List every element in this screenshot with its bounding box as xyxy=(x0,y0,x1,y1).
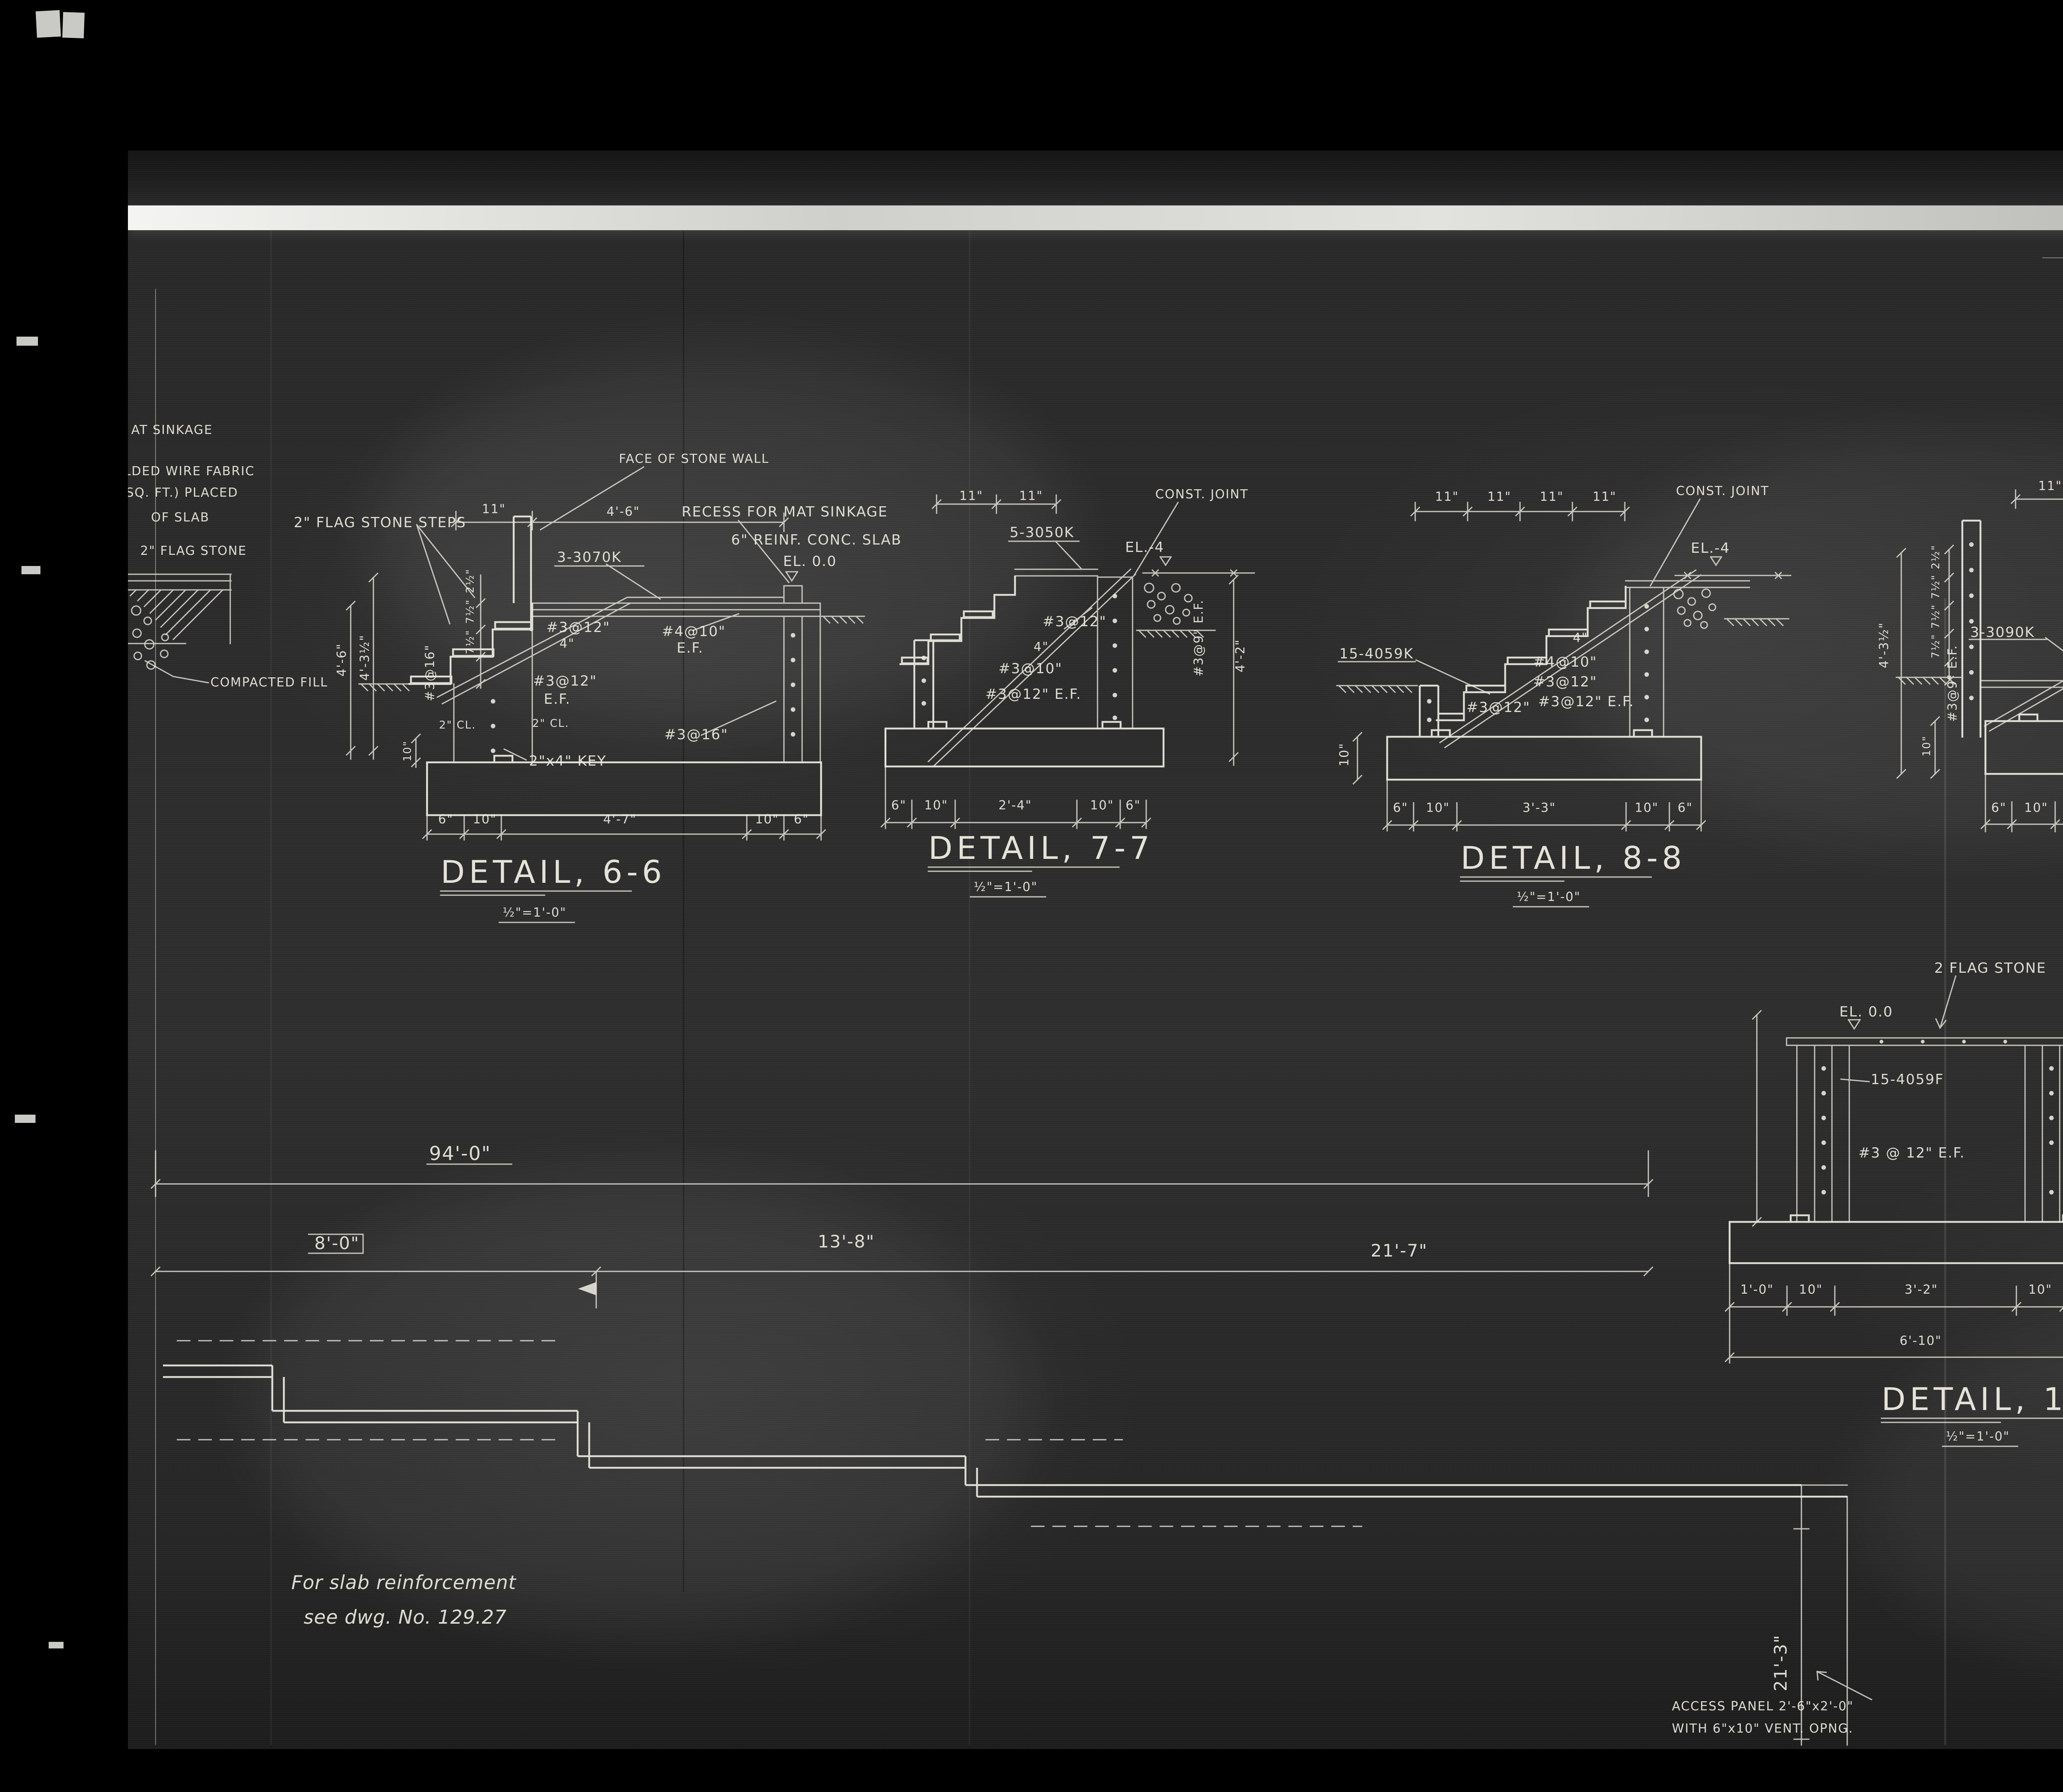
margin-note: SQ. FT.) PLACED xyxy=(128,486,238,500)
d66-dim: 7½" xyxy=(464,599,477,624)
d66-callout: E.F. xyxy=(677,640,703,656)
film-mark xyxy=(17,337,38,346)
d1010-title-underline xyxy=(1881,1418,2063,1422)
d99-dim: 11" xyxy=(2038,479,2062,493)
d66-dim: 10" xyxy=(755,812,779,827)
d99-callout: 3-3090K xyxy=(1970,624,2035,641)
d66-callout: #3@16" xyxy=(423,644,437,701)
drawing-linework: AT SINKAGE LDED WIRE FABRIC SQ. FT.) PLA… xyxy=(128,151,2063,1749)
margin-gravel xyxy=(132,606,168,669)
detail-7-7: 5-3050K EL.-4 CONST. JOINT #3@12" 4" #3@… xyxy=(881,487,1254,897)
d66-dim: 2½" xyxy=(464,568,477,593)
film-mark xyxy=(15,1115,35,1123)
d77-callout: #3@12" xyxy=(1043,613,1107,630)
d1010-dim: 10" xyxy=(1799,1283,1823,1297)
detail-9-9: 3-3090K 2" FLAG STONE RECESS FOR MAT SIN… xyxy=(1877,442,2063,912)
d66-callout: #3@12" xyxy=(546,619,610,636)
d99-structure xyxy=(1962,521,2063,778)
margin-note: AT SINKAGE xyxy=(131,423,213,437)
d1010-dim: 3'-2" xyxy=(1905,1283,1938,1297)
d77-dim: 6" xyxy=(1126,798,1141,813)
slab-note: For slab reinforcement xyxy=(291,1571,517,1594)
d88-dim: 6" xyxy=(1678,801,1693,815)
d77-callout: 4" xyxy=(1034,640,1049,654)
d66-dim: 4'-6" xyxy=(607,505,640,519)
d1010-lines xyxy=(1725,976,2063,1363)
d88-gravel xyxy=(1674,589,1716,628)
d77-callout: #3@9" E.F. xyxy=(1192,599,1206,677)
d88-dim: 10" xyxy=(1337,743,1352,766)
d99-dim: 6" xyxy=(1991,801,2006,815)
d66-title: DETAIL, 6-6 xyxy=(441,854,666,890)
film-mark xyxy=(62,12,85,38)
d66-callout: 2" CL. xyxy=(532,717,569,730)
d77-gravel xyxy=(1145,583,1192,624)
d77-title: DETAIL, 7-7 xyxy=(928,830,1154,866)
border-line xyxy=(156,231,2063,1745)
d66-callout: 2" CL. xyxy=(439,719,476,731)
d88-callout: 15-4059K xyxy=(1339,646,1414,662)
film-mark xyxy=(49,1642,64,1648)
d66-title-underline xyxy=(441,891,631,895)
plan-dim: 21'-3" xyxy=(1770,1634,1791,1691)
d77-dim: 11" xyxy=(959,489,983,503)
margin-note: LDED WIRE FABRIC xyxy=(128,464,255,479)
plan-lines xyxy=(151,1151,1872,1745)
d66-callout: #3@12" xyxy=(533,673,597,689)
plan-view: 94'-0" 8'-0" 13'-8" 21'-7" 21'-3" For sl… xyxy=(151,1142,1872,1745)
d1010-dim: 1'-0" xyxy=(1740,1283,1774,1297)
d77-elevation: EL.-4 xyxy=(1125,539,1164,556)
d77-dim: 6" xyxy=(891,798,906,813)
margin-sketch: AT SINKAGE LDED WIRE FABRIC SQ. FT.) PLA… xyxy=(128,423,328,690)
d88-dim: 11" xyxy=(1487,490,1511,504)
d88-dim: 11" xyxy=(1435,490,1459,504)
access-note: ACCESS PANEL 2'-6"x2'-0" xyxy=(1672,1699,1854,1714)
detail-6-6: 2" FLAG STONE STEPS FACE OF STONE WALL 3… xyxy=(294,452,902,922)
plan-dim: 94'-0" xyxy=(429,1142,491,1165)
d88-title: DETAIL, 8-8 xyxy=(1461,839,1686,876)
d66-callout: #4@10" xyxy=(662,623,726,640)
d77-callout: #3@10" xyxy=(998,660,1062,677)
d66-callout: 4" xyxy=(559,637,575,651)
d66-dim: 4'-3½" xyxy=(358,634,372,681)
d66-scale: ½"=1'-0" xyxy=(503,905,566,920)
d77-dim: 11" xyxy=(1019,489,1043,503)
d77-dim: 4'-2" xyxy=(1233,639,1248,672)
d88-dim: 10" xyxy=(1635,801,1659,815)
d88-callout: 4" xyxy=(1573,631,1588,645)
d66-callout: FACE OF STONE WALL xyxy=(619,452,769,466)
d77-callout: CONST. JOINT xyxy=(1155,487,1249,502)
detail-8-8: 15-4059K CONST. JOINT EL.-4 4" #4@10" #3… xyxy=(1337,484,1791,907)
d66-elevation: EL. 0.0 xyxy=(783,553,837,570)
d88-dim: 6" xyxy=(1393,801,1408,815)
d88-callout: CONST. JOINT xyxy=(1676,484,1769,498)
d77-callout: 5-3050K xyxy=(1010,524,1074,541)
d1010-title: DETAIL, 10-10 xyxy=(1881,1381,2063,1417)
d1010-structure xyxy=(1730,1215,2063,1263)
d1010-callout: 15-4059F xyxy=(1871,1071,1944,1088)
film-mark xyxy=(35,10,61,38)
detail-10-10: 2 FLAG STONE EL. 0.0 15-4059F #3 @ 12" E… xyxy=(1725,960,2063,1446)
plan-hidden-lines xyxy=(177,1341,1362,1526)
d66-callout: 3-3070K xyxy=(557,549,622,566)
photo-frame-top xyxy=(0,0,2063,151)
photo-frame-left xyxy=(0,0,128,1792)
d77-title-underline xyxy=(928,867,1119,871)
d88-dim: 10" xyxy=(1426,801,1450,815)
d88-title-underline xyxy=(1461,877,1651,881)
plan-dim: 13'-8" xyxy=(818,1231,875,1252)
d77-scale: ½"=1'-0" xyxy=(974,880,1038,894)
plan-dim: 21'-7" xyxy=(1371,1240,1428,1261)
d66-callout: #3@16" xyxy=(664,726,728,743)
d88-dim: 3'-3" xyxy=(1522,801,1556,815)
blueprint-photo: 2 of/de AT SINKAGE LDED WIRE FABRIC SQ. … xyxy=(0,0,2063,1792)
d88-dim: 11" xyxy=(1540,490,1564,504)
d1010-callout: 2 FLAG STONE xyxy=(1934,960,2046,976)
d66-callout: 2"x4" KEY xyxy=(529,753,607,769)
d88-callout: #3@12" xyxy=(1466,699,1530,716)
d1010-bar-dots xyxy=(1822,1040,2054,1195)
d77-dim: 10" xyxy=(1090,798,1114,813)
d66-dim: 6" xyxy=(438,812,453,827)
plan-flag-symbol xyxy=(578,1282,596,1295)
d77-dim: 2'-4" xyxy=(998,798,1032,813)
d66-dim: 6" xyxy=(794,812,809,827)
d1010-elevation: EL. 0.0 xyxy=(1839,1004,1893,1020)
film-mark xyxy=(21,566,40,574)
d66-dim: 10" xyxy=(473,812,497,827)
d66-callout: RECESS FOR MAT SINKAGE xyxy=(682,504,888,520)
d66-callout: 6" REINF. CONC. SLAB xyxy=(731,532,902,548)
d1010-dim: 6'-10" xyxy=(1900,1334,1942,1348)
d77-dim: 10" xyxy=(924,798,948,813)
d88-callout: #3@12" E.F. xyxy=(1538,693,1634,710)
d99-callout: #3@9" E.F. xyxy=(1945,645,1960,722)
d88-scale: ½"=1'-0" xyxy=(1517,890,1581,904)
plan-dim: 8'-0" xyxy=(314,1233,359,1253)
d66-bar-dots xyxy=(491,633,795,753)
d66-dim: 11" xyxy=(482,502,506,516)
photo-frame-bottom-overlay xyxy=(0,1754,2063,1792)
d99-dim: 10" xyxy=(1921,736,1933,757)
d88-dim: 11" xyxy=(1593,490,1617,504)
margin-note: 2" FLAG STONE xyxy=(140,544,247,558)
d88-elevation: EL.-4 xyxy=(1691,540,1730,556)
d99-dim: 4'-3½" xyxy=(1877,622,1891,668)
d1010-callout: #3 @ 12" E.F. xyxy=(1858,1145,1965,1161)
d99-dim: 10" xyxy=(2024,801,2048,815)
margin-note: OF SLAB xyxy=(151,510,210,525)
d99-dim: 2½" xyxy=(1930,545,1942,569)
d66-dim: 7½" xyxy=(464,630,477,654)
slab-note: see dwg. No. 129.27 xyxy=(304,1606,507,1628)
d88-callout: #4@10" xyxy=(1533,654,1597,670)
margin-lines xyxy=(128,574,231,683)
d99-dim: 7½" xyxy=(1930,634,1942,658)
d66-callout: 2" FLAG STONE STEPS xyxy=(294,514,466,531)
access-note: WITH 6"x10" VENT. OPNG. xyxy=(1672,1721,1853,1736)
d77-callout: #3@12" E.F. xyxy=(985,686,1081,703)
d99-dim: 7½" xyxy=(1930,574,1942,599)
margin-note: COMPACTED FILL xyxy=(210,675,328,690)
d66-dim: 10" xyxy=(401,740,414,762)
d66-dim: 4'-7" xyxy=(603,812,637,827)
d99-dim: 7½" xyxy=(1930,604,1942,629)
d88-callout: #3@12" xyxy=(1533,674,1597,690)
d66-dim: 4'-6" xyxy=(335,643,349,677)
plan-wall xyxy=(163,1365,1847,1497)
d66-callout: E.F. xyxy=(544,691,571,707)
d1010-scale: ½"=1'-0" xyxy=(1946,1429,2010,1444)
d1010-dim: 10" xyxy=(2028,1283,2052,1297)
